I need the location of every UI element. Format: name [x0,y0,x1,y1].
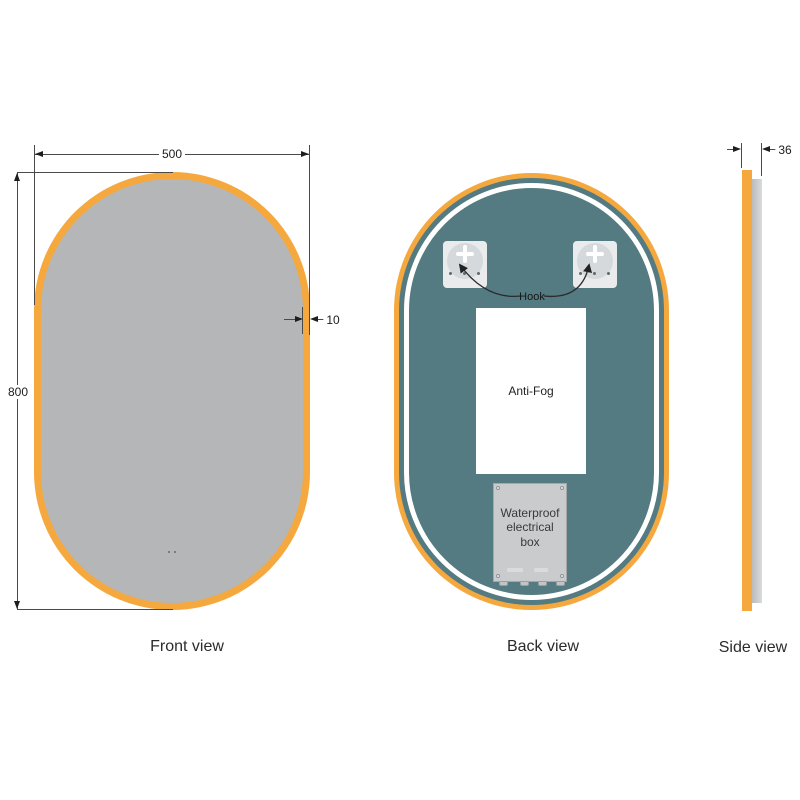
sensor-dot [168,551,170,553]
dim-800-extension-top [17,172,173,173]
dim-10-arrow-left [295,316,303,322]
back-view-label: Back view [507,638,579,656]
box-screw [496,574,500,578]
dim-500-arrow-right [301,151,309,157]
back-view-frame: Hook Anti-Fog Waterproof electrical box [394,173,669,610]
technical-drawing-canvas: 500 800 10 [0,0,800,800]
dim-10-label: 10 [323,313,342,327]
anti-fog-film: Anti-Fog [476,308,586,474]
electrical-box-label: Waterproof electrical box [497,506,563,548]
front-view-mirror-frame [34,172,310,610]
box-tab [556,581,565,586]
box-screw [560,486,564,490]
anti-fog-label: Anti-Fog [508,384,553,398]
dim-800-extension-bottom [17,609,173,610]
hook-label: Hook [519,291,545,303]
sensor-dot [174,551,176,553]
dim-800-arrow-top [14,173,20,181]
dim-500-extension-right [309,145,310,335]
dim-10-arrow-right [310,316,318,322]
hook-arrow-right [544,265,589,296]
dim-500-label: 500 [159,147,185,161]
box-screw [560,574,564,578]
dim-36-extension-left [741,143,742,168]
side-view-frame-edge [742,170,752,611]
dim-36-arrow-left [733,146,741,152]
side-view-label: Side view [719,639,787,657]
electrical-box: Waterproof electrical box [493,483,567,582]
connector-mark [507,568,523,572]
front-view-mirror-surface [41,179,303,603]
front-view-label: Front view [150,638,224,656]
dim-36-arrow-right [762,146,770,152]
hook-arrow-left [460,265,521,296]
dim-800-label: 800 [5,385,31,399]
box-tab [499,581,508,586]
box-screw [496,486,500,490]
dim-800-arrow-bottom [14,601,20,609]
dim-500-extension-left [34,145,35,305]
box-tab [520,581,529,586]
box-tab [538,581,547,586]
connector-mark [534,568,548,572]
dim-36-label: 36 [775,143,794,157]
dim-500-arrow-left [35,151,43,157]
side-view-body [752,179,762,603]
